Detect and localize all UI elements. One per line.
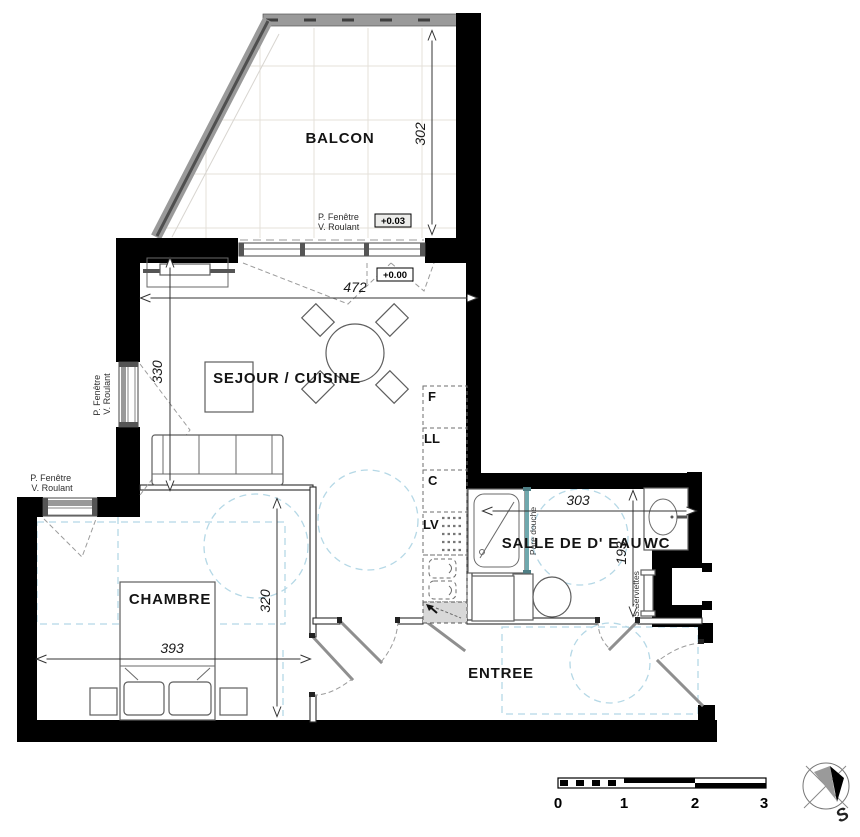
window-bedroom	[43, 498, 97, 557]
scale-tick-3: 3	[760, 795, 768, 812]
dishwasher-grid	[442, 518, 463, 550]
dining-set	[302, 304, 409, 404]
window-label-line1: P. Fenêtre	[30, 473, 71, 483]
nightstand-right	[220, 688, 247, 715]
window-label-living-left: P. Fenêtre V. Roulant	[92, 372, 112, 415]
chair	[302, 304, 335, 337]
dim-living-width: 472	[343, 279, 367, 295]
bathroom-cabinet	[472, 576, 514, 621]
door-entry-main	[658, 639, 704, 705]
living-label: SEJOUR / CUISINE	[213, 370, 361, 387]
window-label-line1: P. Fenêtre	[318, 212, 359, 222]
clearance-circle-bedroom	[204, 494, 308, 598]
window-label-line2: V. Roulant	[318, 222, 360, 232]
wall-bathroom-top	[481, 473, 702, 489]
partition-entry-left	[313, 618, 340, 624]
balcony-tile-grid	[152, 28, 456, 238]
clearance-circle-entry	[570, 623, 650, 703]
wall-bedroom-left	[17, 497, 37, 742]
partition-bathroom-right	[638, 618, 702, 624]
doors	[309, 617, 704, 705]
dim-living-depth: 330	[149, 360, 165, 384]
floorplan-page: F LL C LV Pare douche	[0, 0, 860, 837]
dim-bathroom-width: 303	[566, 492, 590, 508]
door-bedroom	[309, 633, 352, 697]
sofa	[152, 435, 283, 485]
wall-living-right	[466, 238, 481, 489]
entry-label: ENTREE	[468, 665, 534, 682]
window-label-line2: V. Roulant	[31, 483, 73, 493]
nightstand-left	[90, 688, 117, 715]
wall-entry-door-stub-bottom	[698, 705, 715, 742]
wall-living-left-lower	[116, 427, 140, 517]
dim-bedroom-width: 393	[160, 640, 184, 656]
kitchen-sink	[423, 555, 467, 602]
shower	[468, 489, 525, 573]
wall-balcony-right	[456, 13, 481, 238]
window-label-balcony: P. Fenêtre V. Roulant	[318, 212, 361, 232]
fridge-label: F	[428, 389, 436, 404]
cooktop-label: C	[428, 473, 438, 488]
scale-tick-2: 2	[691, 795, 699, 812]
kitchen: F LL C LV	[423, 386, 467, 623]
scale-tick-0: 0	[554, 795, 562, 812]
washing-machine-label: LL	[424, 431, 440, 446]
door-living-entry	[337, 617, 400, 662]
door-bathroom	[595, 617, 640, 649]
partition-living-bedroom	[140, 485, 313, 490]
toilet	[513, 574, 571, 620]
level-balcony: +0.03	[375, 214, 411, 227]
scale-bar: 0 1 2 3	[554, 778, 768, 812]
level-living: +0.00	[377, 268, 413, 281]
window-label-line1: P. Fenêtre	[92, 375, 102, 416]
bedroom-label: CHAMBRE	[129, 591, 211, 608]
clearance-circle-living	[318, 470, 418, 570]
pillow	[169, 682, 211, 715]
dishwasher-label: LV	[423, 517, 439, 532]
floor-plan-svg: F LL C LV Pare douche	[0, 0, 860, 837]
dim-balcony-depth: 302	[412, 122, 428, 146]
partition-bedroom-upper	[310, 487, 316, 637]
level-balcony-value: +0.03	[381, 216, 405, 227]
pillow	[124, 682, 164, 715]
wc-label: WC	[644, 535, 671, 552]
partitions	[140, 485, 702, 722]
window-swing	[44, 519, 96, 557]
technical-duct	[423, 602, 467, 623]
wall-duct-tab-bottom	[702, 601, 712, 610]
balcony-label: BALCON	[306, 130, 375, 147]
wall-bedroom-top-right	[97, 497, 116, 517]
level-living-value: +0.00	[383, 270, 407, 281]
chair	[376, 304, 409, 337]
partition-bedroom-lower	[310, 695, 316, 722]
wall-bottom	[17, 720, 717, 742]
towel-dryer	[641, 570, 655, 616]
window-label-bedroom: P. Fenêtre V. Roulant	[30, 473, 73, 493]
wall-living-left-upper	[116, 238, 140, 362]
chair	[376, 371, 409, 404]
door-duct-closet	[428, 623, 464, 650]
wall-duct-tab-top	[702, 563, 712, 572]
partition-entry-right	[398, 618, 423, 624]
compass-south-label: S	[832, 803, 852, 826]
bathroom-label: SALLE DE D' EAU	[502, 535, 643, 552]
dim-bedroom-depth: 320	[257, 589, 273, 613]
north-compass: S	[803, 763, 852, 826]
wall-duct-block	[652, 550, 702, 627]
scale-tick-1: 1	[620, 795, 628, 812]
window-label-line2: V. Roulant	[102, 373, 112, 415]
